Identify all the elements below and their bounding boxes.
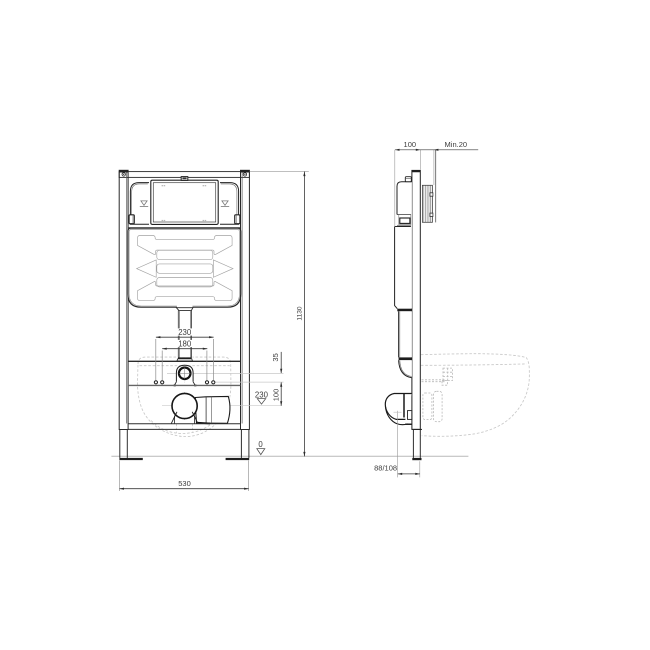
svg-text:180: 180: [178, 340, 192, 349]
svg-text:230: 230: [178, 328, 192, 337]
svg-text:230: 230: [255, 391, 269, 400]
svg-text:35: 35: [271, 353, 280, 361]
svg-text:1130: 1130: [297, 306, 304, 321]
svg-text:0: 0: [258, 440, 263, 449]
svg-text:88/108: 88/108: [374, 464, 397, 473]
svg-text:Min.20: Min.20: [445, 140, 468, 149]
svg-text:530: 530: [178, 479, 191, 488]
svg-text:100: 100: [404, 140, 417, 149]
svg-text:100: 100: [272, 389, 281, 402]
